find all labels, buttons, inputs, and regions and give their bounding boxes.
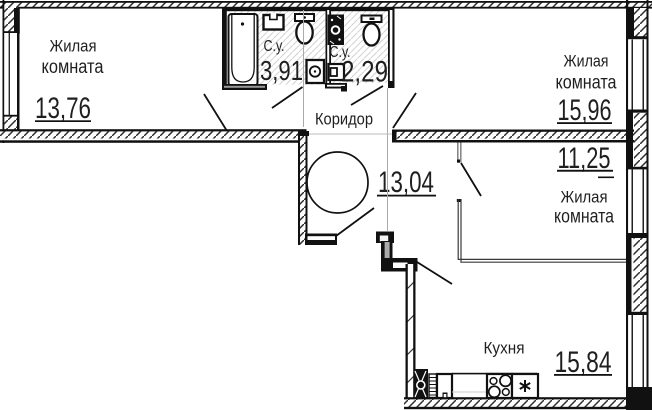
svg-text:комната: комната [554,207,614,228]
svg-text:Жилая: Жилая [561,188,608,207]
svg-text:С.у.: С.у. [264,38,285,55]
svg-text:Кухня: Кухня [484,339,525,358]
svg-text:Жилая: Жилая [50,37,97,56]
svg-text:Жилая: Жилая [564,52,609,71]
svg-text:3,91: 3,91 [260,55,303,86]
svg-text:13,76: 13,76 [35,92,91,125]
svg-text:комната: комната [556,73,617,94]
svg-text:13,04: 13,04 [378,166,434,199]
svg-text:Коридор: Коридор [315,110,373,129]
svg-text:2,29: 2,29 [341,56,388,89]
svg-text:15,96: 15,96 [558,94,612,127]
svg-text:комната: комната [42,57,104,78]
